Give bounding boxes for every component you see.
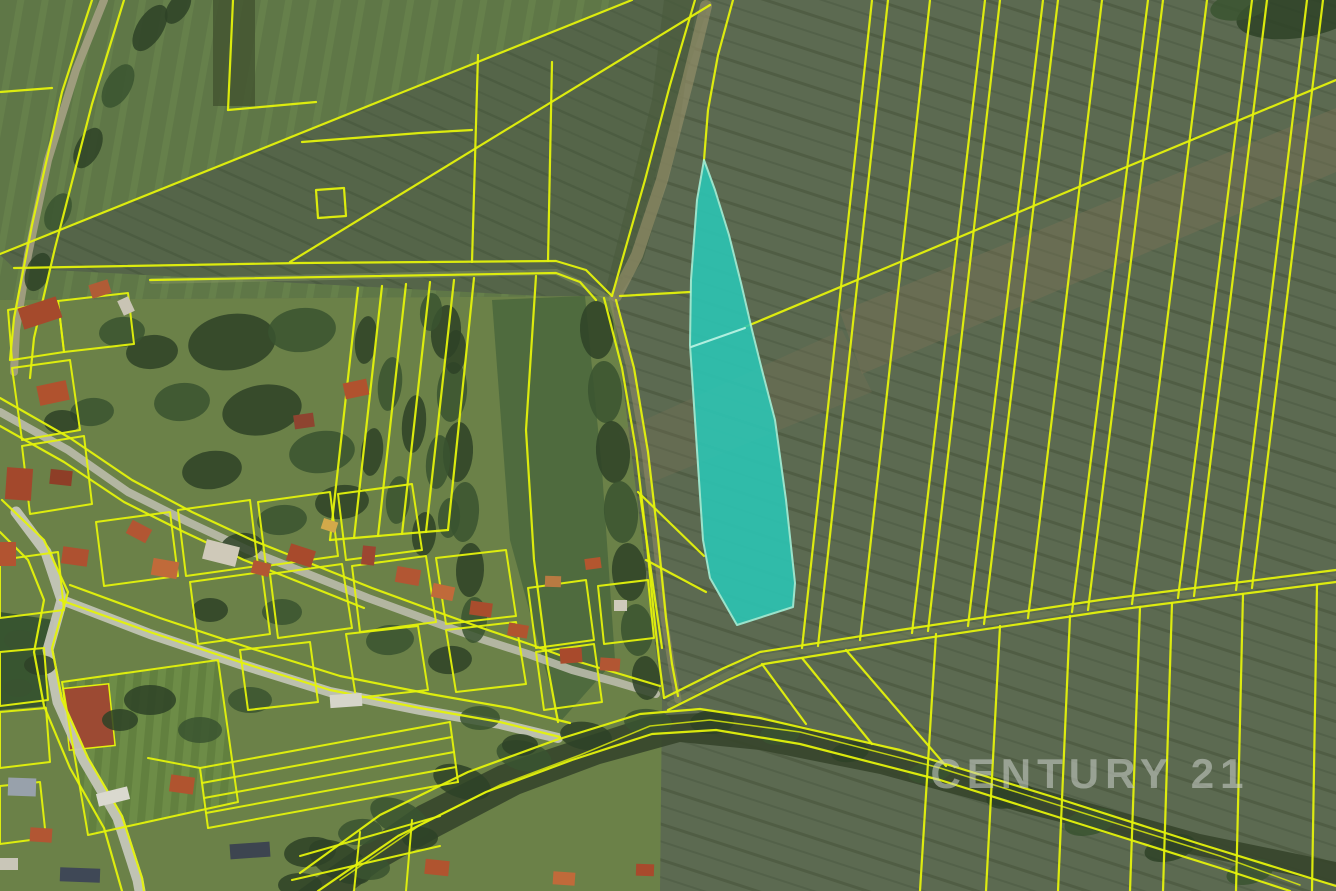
house bbox=[424, 859, 449, 876]
house bbox=[8, 778, 37, 797]
watermark: CENTURY 21 bbox=[930, 750, 1249, 797]
house bbox=[553, 871, 576, 886]
house bbox=[5, 467, 33, 501]
house bbox=[0, 858, 18, 870]
house bbox=[330, 693, 363, 708]
house bbox=[600, 657, 621, 671]
house bbox=[560, 647, 583, 663]
house bbox=[169, 774, 195, 794]
house bbox=[230, 842, 271, 860]
tree bbox=[178, 717, 222, 743]
tree bbox=[4, 630, 36, 650]
house bbox=[293, 413, 315, 430]
tree bbox=[24, 655, 56, 675]
tree bbox=[192, 598, 228, 622]
tree bbox=[4, 679, 32, 697]
tree bbox=[124, 685, 176, 715]
house bbox=[61, 546, 89, 566]
tree bbox=[102, 709, 138, 731]
house bbox=[60, 867, 100, 882]
house bbox=[545, 576, 561, 588]
house bbox=[30, 827, 53, 843]
house bbox=[361, 545, 376, 565]
dark-crop-strip bbox=[213, 0, 255, 106]
house bbox=[584, 557, 601, 570]
map-canvas: CENTURY 21 bbox=[0, 0, 1336, 891]
house bbox=[49, 469, 72, 486]
house bbox=[636, 864, 654, 877]
house bbox=[614, 600, 627, 611]
cadastral-map: CENTURY 21 bbox=[0, 0, 1336, 891]
house bbox=[0, 542, 16, 566]
